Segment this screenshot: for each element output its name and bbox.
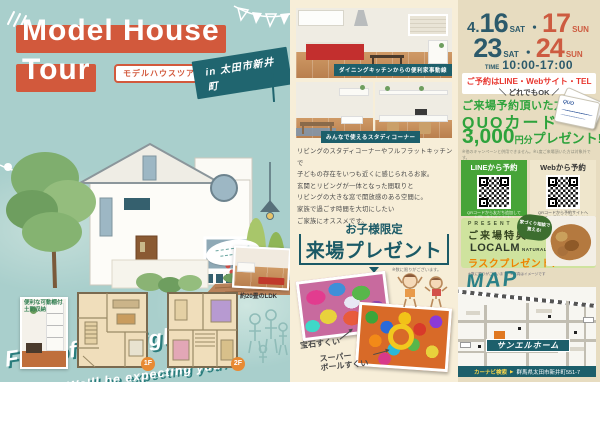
line-reservation-label: LINEから予約 (461, 160, 527, 173)
ldk-caption: 約20畳のLDK (240, 291, 277, 300)
event-time: TIME10:00-17:00 (458, 58, 600, 72)
dining-photo (296, 82, 373, 138)
superball-scooping-photo (355, 302, 452, 372)
description-paragraph: リビングのスタディコーナーやフルフラットキッチンで 子どもの存在をいつも近くに感… (297, 146, 455, 227)
web-reservation-block: Webから予約 QRコードから予約サイトへアクセスし日時をお選びください (530, 160, 596, 216)
children-illustration-icon (396, 271, 452, 309)
line-qr-code[interactable] (477, 175, 511, 209)
web-qr-code[interactable] (546, 175, 580, 209)
scoop-ring (387, 323, 415, 351)
access-map (458, 287, 596, 366)
carnavi-bar: カーナビ検索 ▶ 群馬県太田市新井町551-7 (458, 366, 596, 377)
page-title-line1: Model House (20, 16, 231, 46)
floor1-badge: 1F (141, 357, 155, 371)
kitchen-photo-caption: ダイニングキッチンからの便利家事動線 (334, 64, 452, 76)
map-company-banner: サンエルホーム (486, 339, 570, 352)
kids-present-heading: 来場プレゼント (299, 236, 449, 263)
floor2-badge: 2F (231, 357, 245, 371)
footer-bar: サンエルホーム OTA ☎ 0120-050-939 〒373-0852 群馬県… (0, 382, 600, 424)
bunting-icon (232, 2, 292, 52)
study-photo-caption: みんなで使えるスタディコーナー (321, 131, 420, 143)
left-column: Model House Tour モデルハウスツアー in 太田市新井町 (0, 0, 290, 382)
triangle-right-icon: ▶ (510, 369, 513, 375)
ldk-photo (232, 246, 291, 291)
line-reservation-block: LINEから予約 QRコードから友だち追加してお問い合わせください (461, 160, 527, 216)
study-photo (375, 82, 452, 138)
floorplan-1f (77, 292, 148, 368)
rusk-photo (546, 216, 596, 266)
floorplan-2f (167, 292, 238, 368)
flyer-page: Model House Tour モデルハウスツアー in 太田市新井町 (0, 0, 600, 424)
title-text: Model House (20, 16, 222, 46)
quo-amount-line: 3,000円分プレゼント! (462, 125, 600, 149)
web-reservation-label: Webから予約 (530, 160, 596, 173)
family-sketch-icon (245, 305, 290, 369)
storage-caption: 便利な可動棚付 土間収納 (24, 300, 63, 314)
